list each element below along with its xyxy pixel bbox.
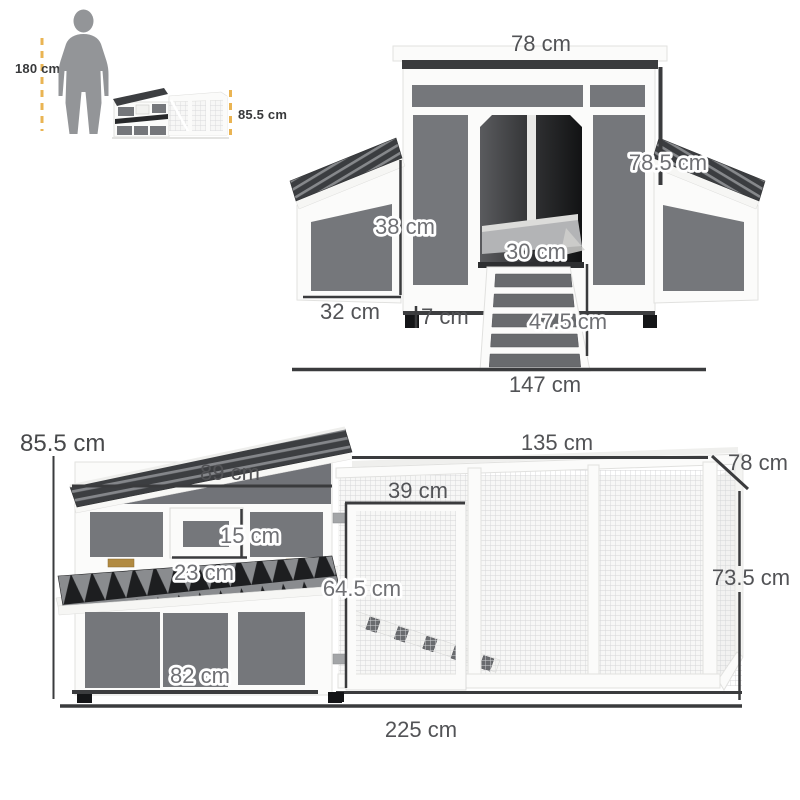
dim-label-window-width: 23 cm	[174, 560, 234, 585]
scale-reference: 180 cm 85.5 cm	[15, 10, 287, 140]
dim-label-roof-width: 78 cm	[511, 31, 571, 56]
dim-label-ramp-length: 47.5 cm	[529, 309, 607, 334]
dim-label-door-width: 30 cm	[506, 239, 566, 264]
run-door-hinge-bottom	[333, 654, 346, 664]
person-height-label: 180 cm	[15, 61, 60, 76]
dim-label-side-height: 78.5 cm	[629, 150, 707, 175]
dim-label-nest-width: 32 cm	[320, 299, 380, 324]
dim-label-total-width: 147 cm	[509, 372, 581, 397]
side-view-illustration: 85.5 cm 89 cm 135 cm 78 cm 39 cm 15 cm 2…	[20, 428, 790, 742]
dim-label-run-depth: 78 cm	[728, 450, 788, 475]
dim-label-window-height: 15 cm	[220, 523, 280, 548]
hinge-left	[108, 559, 134, 567]
dim-label-run-door-height: 64.5 cm	[323, 576, 401, 601]
dimension-diagram: 180 cm 85.5 cm	[0, 0, 800, 800]
run-door-hinge-top	[333, 513, 346, 523]
person-silhouette	[59, 10, 109, 135]
front-view-illustration: 78 cm 78.5 cm 38 cm 30 cm 32 cm 7 cm 47.…	[290, 31, 765, 397]
dim-label-run-length: 135 cm	[521, 430, 593, 455]
dim-label-nest-height: 38 cm	[375, 214, 435, 239]
dim-label-main-panel-width: 82 cm	[170, 663, 230, 688]
dim-label-run-height: 73.5 cm	[712, 565, 790, 590]
dim-label-coop-height: 85.5 cm	[20, 430, 105, 457]
dim-label-leg-height: 7 cm	[421, 304, 469, 329]
dim-label-coop-length: 89 cm	[200, 460, 260, 485]
coop-foot-right	[643, 315, 657, 328]
product-thumbnail	[112, 88, 229, 139]
dim-label-run-door-width: 39 cm	[388, 478, 448, 503]
dim-label-total-length: 225 cm	[385, 717, 457, 742]
product-height-label: 85.5 cm	[238, 107, 287, 122]
